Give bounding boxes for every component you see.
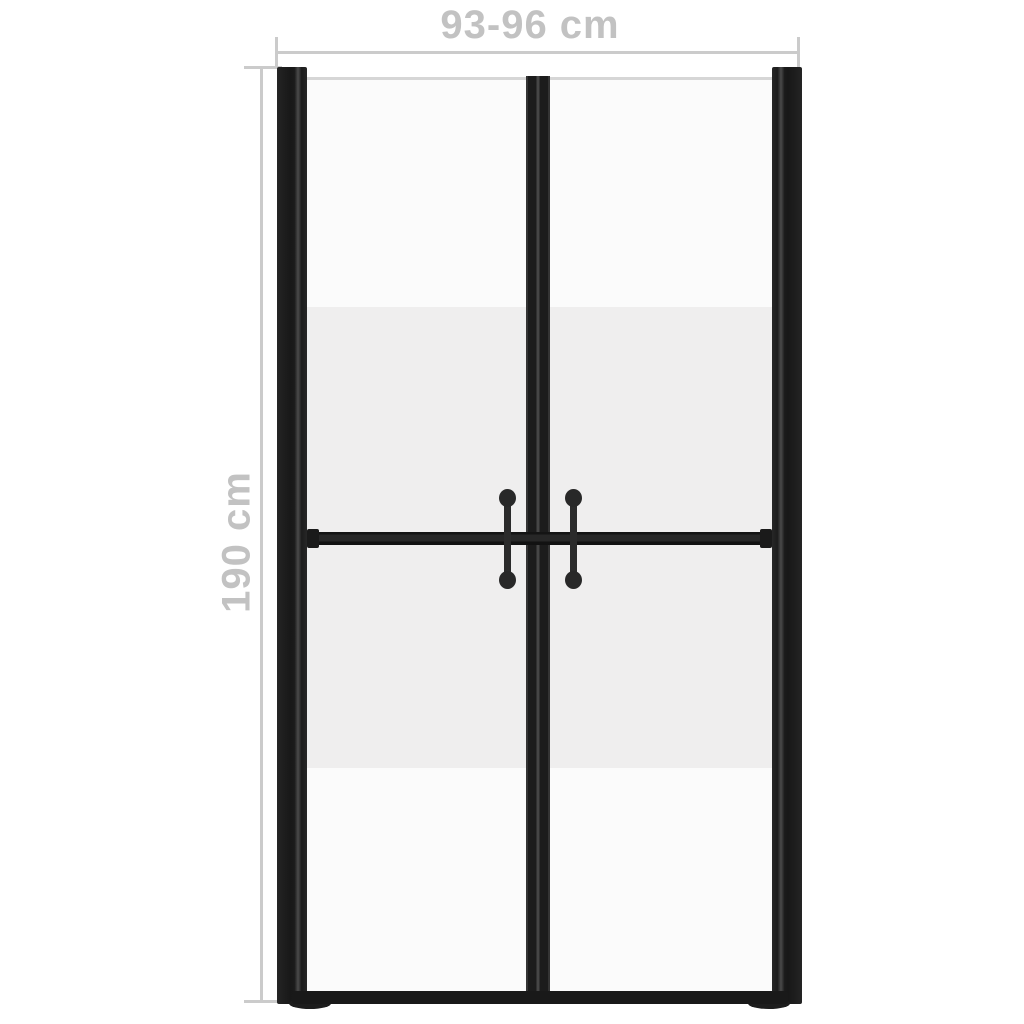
crossbar bbox=[307, 532, 772, 545]
width-dimension-label: 93-96 cm bbox=[440, 3, 619, 48]
height-dimension-label: 190 cm bbox=[215, 471, 260, 613]
left-handle-knob-top bbox=[499, 489, 516, 507]
width-dimension-tick-left bbox=[275, 37, 278, 67]
left-handle-bar bbox=[504, 498, 511, 582]
crossbar-bracket-right bbox=[760, 529, 772, 548]
product-dimension-diagram: 93-96 cm 190 cm bbox=[0, 0, 1024, 1024]
height-dimension-line bbox=[260, 68, 263, 1003]
width-dimension-line bbox=[277, 51, 800, 54]
crossbar-bracket-left bbox=[307, 529, 319, 548]
bottom-rail bbox=[292, 991, 788, 1004]
left-handle-knob-bottom bbox=[499, 571, 516, 589]
right-handle-knob-top bbox=[565, 489, 582, 507]
right-frame-post bbox=[772, 67, 802, 1004]
right-handle-knob-bottom bbox=[565, 571, 582, 589]
width-dimension-tick-right bbox=[797, 37, 800, 67]
right-handle-bar bbox=[570, 498, 577, 582]
left-frame-post bbox=[277, 67, 307, 1004]
